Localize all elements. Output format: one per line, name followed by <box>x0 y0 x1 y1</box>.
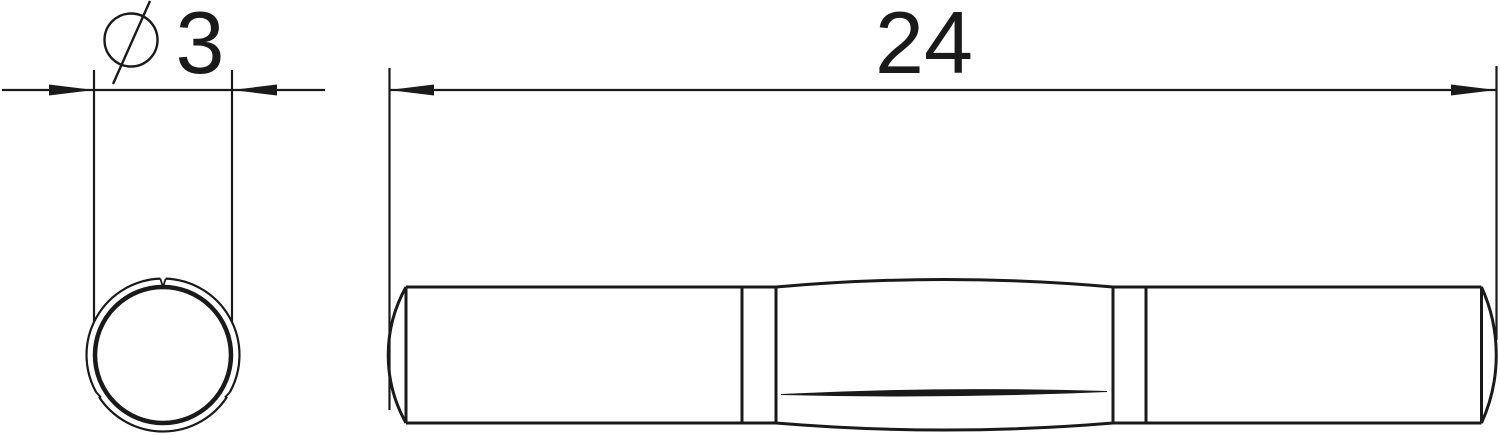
bulge-bottom-edge <box>776 423 1113 430</box>
slot-lens <box>781 390 1107 396</box>
left-end-cap-arc <box>388 287 406 423</box>
side-view <box>388 280 1496 431</box>
arrowhead-icon <box>49 85 94 96</box>
arrowhead-icon <box>1451 85 1496 96</box>
inner-circle <box>95 287 231 423</box>
technical-drawing-page: 3 24 <box>0 0 1500 435</box>
length-dimension-value: 24 <box>875 0 973 92</box>
outer-circle <box>87 279 240 432</box>
bulge-top-edge <box>776 280 1113 288</box>
lower-right-notch <box>225 392 230 397</box>
arrowhead-icon <box>232 85 277 96</box>
diameter-symbol-icon <box>105 1 158 84</box>
diameter-symbol-circle <box>105 14 158 67</box>
length-dimension <box>389 66 1497 410</box>
outer-circle-arc <box>99 397 227 432</box>
lower-left-notch <box>96 392 101 397</box>
end-view <box>87 279 240 432</box>
diameter-dimension <box>2 1 325 322</box>
right-end-cap-arc <box>1482 287 1497 423</box>
arrowhead-icon <box>389 85 434 96</box>
diameter-dimension-value: 3 <box>176 0 225 92</box>
technical-drawing: 3 24 <box>0 0 1500 435</box>
